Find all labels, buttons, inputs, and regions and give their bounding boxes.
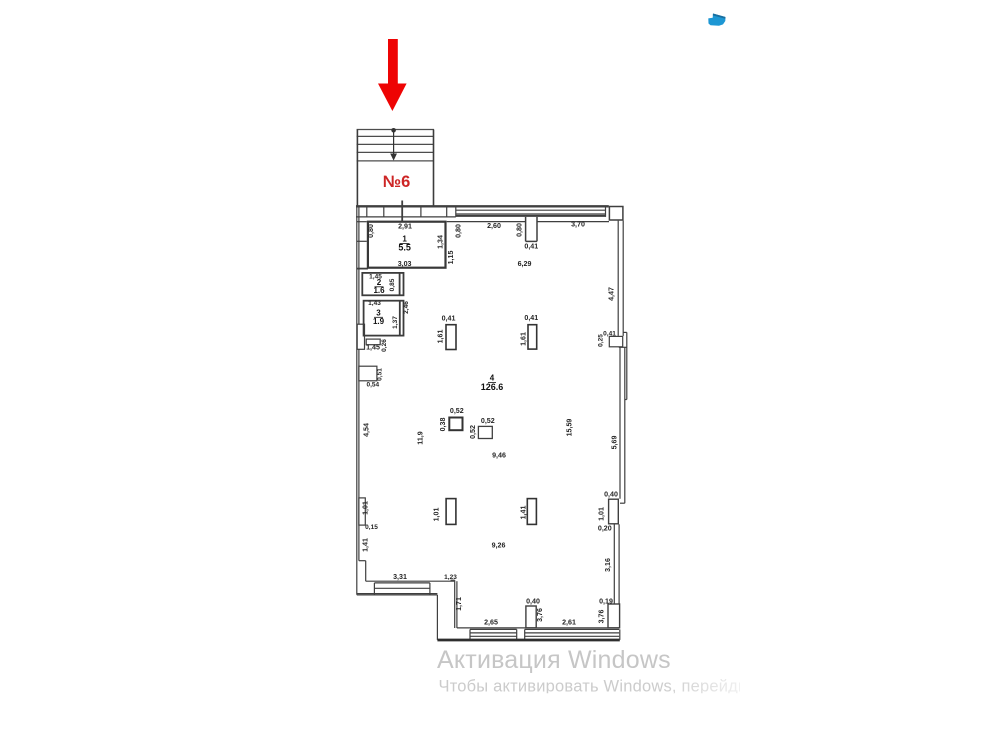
svg-text:0,85: 0,85 (389, 278, 396, 291)
svg-text:1,41: 1,41 (520, 506, 528, 520)
svg-text:5.5: 5.5 (398, 243, 411, 253)
svg-text:0,80: 0,80 (367, 224, 375, 238)
svg-text:0,25: 0,25 (598, 334, 605, 347)
svg-text:1,61: 1,61 (436, 330, 444, 344)
svg-text:2,61: 2,61 (562, 619, 576, 627)
svg-text:0,52: 0,52 (450, 407, 464, 415)
svg-text:0,26: 0,26 (381, 339, 388, 352)
svg-text:0,41: 0,41 (524, 242, 538, 250)
svg-text:0,41: 0,41 (603, 331, 616, 338)
svg-text:1,01: 1,01 (597, 507, 605, 521)
svg-text:0,80: 0,80 (515, 223, 523, 237)
svg-text:11,9: 11,9 (417, 431, 425, 444)
svg-text:0,80: 0,80 (454, 224, 462, 238)
svg-text:2,91: 2,91 (398, 223, 412, 231)
svg-text:1,45: 1,45 (366, 344, 380, 352)
svg-text:0,52: 0,52 (481, 417, 495, 425)
svg-text:0,40: 0,40 (526, 598, 540, 606)
svg-text:1,43: 1,43 (368, 300, 381, 307)
svg-text:3,76: 3,76 (597, 610, 605, 624)
svg-text:0,15: 0,15 (365, 524, 378, 531)
svg-text:3,16: 3,16 (604, 558, 612, 572)
svg-text:3,76: 3,76 (536, 608, 544, 622)
svg-text:2,60: 2,60 (487, 222, 501, 230)
svg-text:3,70: 3,70 (571, 221, 585, 229)
svg-text:2,46: 2,46 (403, 301, 410, 314)
svg-text:1,37: 1,37 (392, 316, 399, 329)
svg-text:0,41: 0,41 (442, 315, 456, 323)
svg-text:0,54: 0,54 (366, 382, 379, 389)
svg-text:0,19: 0,19 (599, 598, 613, 606)
svg-text:4,54: 4,54 (363, 423, 371, 437)
svg-text:3,03: 3,03 (398, 260, 412, 268)
svg-text:0,51: 0,51 (376, 368, 383, 381)
svg-text:15,59: 15,59 (566, 419, 574, 437)
svg-text:1,61: 1,61 (519, 332, 527, 346)
svg-text:6,29: 6,29 (518, 260, 532, 268)
svg-text:2,65: 2,65 (484, 619, 498, 627)
svg-text:1.9: 1.9 (373, 317, 385, 326)
svg-text:0,41: 0,41 (524, 314, 538, 322)
svg-text:9,26: 9,26 (492, 542, 506, 550)
svg-text:0,20: 0,20 (598, 525, 612, 533)
svg-text:1,01: 1,01 (362, 501, 370, 515)
svg-text:1,71: 1,71 (455, 597, 463, 611)
svg-text:№6: №6 (383, 173, 411, 191)
svg-text:5,69: 5,69 (610, 436, 618, 450)
svg-text:3,31: 3,31 (393, 573, 407, 581)
svg-text:126.6: 126.6 (481, 382, 504, 392)
svg-text:1,01: 1,01 (433, 508, 441, 522)
svg-text:4,47: 4,47 (608, 287, 616, 301)
svg-text:0,38: 0,38 (439, 418, 447, 432)
svg-text:Чтобы активировать Windows, пе: Чтобы активировать Windows, перейдите (439, 678, 765, 696)
svg-text:Активация Windows: Активация Windows (437, 646, 671, 674)
svg-text:0,40: 0,40 (604, 491, 618, 499)
svg-text:1,41: 1,41 (362, 538, 370, 552)
svg-text:0,52: 0,52 (469, 425, 477, 439)
svg-text:1,34: 1,34 (437, 235, 445, 249)
svg-text:1,23: 1,23 (444, 574, 457, 581)
svg-text:1.6: 1.6 (373, 286, 385, 295)
svg-text:9,46: 9,46 (492, 452, 506, 460)
svg-text:1,15: 1,15 (447, 251, 455, 265)
